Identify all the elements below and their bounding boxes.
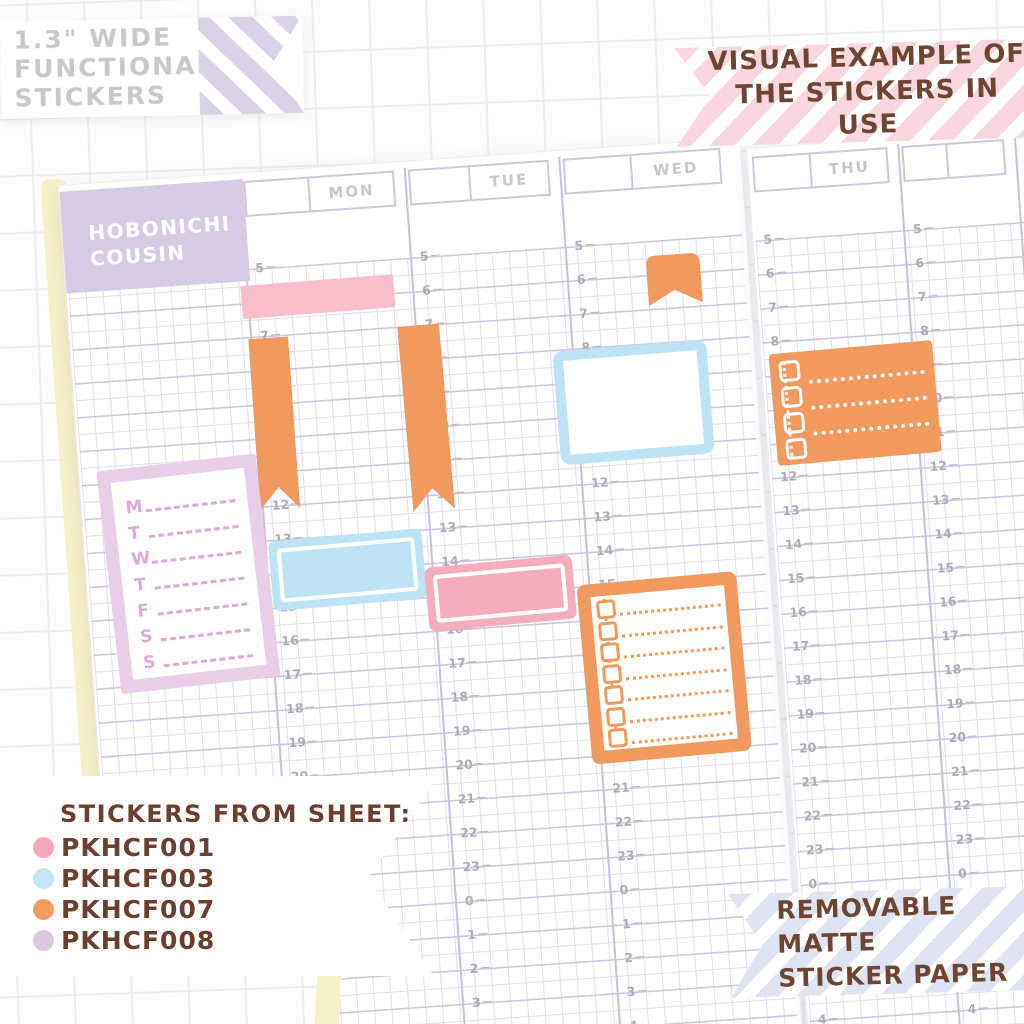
product-image: HOBONICHI COUSIN MTWTFSS MON567891011121… (0, 0, 1024, 1024)
checkbox (600, 642, 621, 663)
time-label: 19 (946, 694, 975, 711)
day-header-row: WED (562, 148, 722, 195)
sheet-code: PKHCF008 (61, 928, 215, 953)
day-name: MON (307, 173, 394, 211)
time-label: 22 (460, 824, 489, 841)
color-swatch (33, 899, 54, 920)
blue-outline-box-sticker (552, 339, 715, 465)
dotted-line (620, 604, 721, 616)
time-label: 23 (462, 857, 491, 874)
time-label: 18 (943, 661, 972, 678)
habit-tracker-sticker: MTWTFSS (96, 454, 280, 695)
dotted-line (628, 689, 729, 701)
time-label: 6 (422, 281, 443, 297)
top-right-banner: VISUAL EXAMPLE OF THE STICKERS IN USE (674, 39, 1024, 147)
day-name: WED (629, 150, 720, 188)
time-label: 6 (915, 254, 936, 270)
time-label: 12 (591, 474, 620, 491)
time-label: 22 (803, 807, 832, 824)
checkbox (778, 360, 801, 383)
day-header-row: MON (243, 171, 396, 217)
time-label: 7 (917, 288, 938, 304)
time-label: 6 (765, 265, 786, 281)
day-name: THU (809, 149, 888, 186)
sheet-list-item: PKHCF001 (33, 834, 215, 860)
time-label: 18 (286, 699, 315, 716)
color-swatch (33, 930, 54, 951)
purple-washi-tail (198, 16, 304, 115)
banner-line: THE STICKERS IN USE (705, 71, 1024, 147)
time-label: 17 (283, 665, 312, 682)
blue-label-box-sticker (268, 528, 428, 611)
habit-day-letter: S (142, 654, 160, 673)
time-label: 21 (801, 773, 830, 790)
checkbox (607, 728, 628, 749)
book-bottom-edge (315, 971, 342, 1024)
time-label: 22 (953, 796, 982, 813)
time-label: 5 (574, 237, 595, 253)
dotted-line (630, 711, 731, 723)
time-label: 19 (796, 705, 825, 722)
pink-label-box-sticker (424, 555, 577, 632)
dotted-line (813, 422, 929, 436)
habit-day-letter: F (137, 602, 155, 621)
time-label: 23 (806, 841, 835, 858)
sheet-list-item: PKHCF003 (33, 865, 215, 891)
checkbox (780, 386, 803, 409)
time-label: 5 (419, 248, 440, 264)
time-label: 2 (624, 949, 645, 965)
habit-day-letter: W (131, 550, 149, 569)
time-label: 20 (798, 739, 827, 756)
color-swatch (33, 868, 54, 889)
time-label: 15 (787, 569, 816, 586)
checkbox (783, 412, 806, 435)
time-label: 3 (626, 983, 647, 999)
sheet-code: PKHCF003 (61, 866, 215, 891)
wall-corner-patch (0, 974, 322, 1024)
time-label: 3 (472, 994, 493, 1010)
time-label: 0 (619, 881, 640, 897)
dotted-line (626, 668, 727, 680)
time-label: 13 (438, 518, 467, 535)
habit-day-letter: M (125, 499, 143, 518)
date-cell (903, 145, 947, 180)
time-label: 14 (784, 535, 813, 552)
time-label: 19 (453, 722, 482, 739)
habit-day-letter: T (134, 576, 152, 595)
time-label: 8 (920, 322, 941, 338)
checkbox (604, 685, 625, 706)
sheet-code: PKHCF001 (61, 835, 215, 860)
time-label: 22 (614, 813, 643, 830)
time-label: 13 (932, 491, 961, 508)
checkbox (606, 706, 627, 727)
time-label: 12 (929, 457, 958, 474)
checkbox (785, 437, 808, 460)
time-label: 17 (941, 627, 970, 644)
time-label: 19 (288, 733, 317, 750)
time-label: 1 (621, 915, 642, 931)
time-label: 4 (629, 1017, 650, 1024)
habit-day-letter: S (139, 628, 157, 647)
time-label: 5 (255, 259, 276, 275)
dotted-line (624, 646, 725, 658)
banner-line: STICKER PAPER (778, 955, 1024, 995)
time-label: 4 (817, 1011, 838, 1024)
sheet-code: PKHCF007 (61, 897, 215, 922)
time-label: 23 (617, 847, 646, 864)
time-label: 20 (455, 756, 484, 773)
checkbox (598, 621, 619, 642)
date-cell (245, 179, 309, 215)
bottom-right-banner: REMOVABLE MATTE STICKER PAPER (728, 886, 1024, 998)
date-cell (565, 156, 632, 192)
dotted-line (809, 370, 925, 384)
date-cell (410, 167, 470, 203)
orange-solid-checklist-sticker (768, 340, 941, 466)
time-label: 7 (579, 305, 600, 321)
habit-dashed-line (164, 654, 254, 667)
time-label: 5 (763, 231, 784, 247)
color-swatch (33, 837, 54, 858)
time-label: 16 (939, 593, 968, 610)
time-label: 21 (612, 779, 641, 796)
time-label: 15 (936, 559, 965, 576)
label-box-inner-outline (433, 563, 569, 623)
time-label: 13 (593, 507, 622, 524)
checkbox (596, 599, 617, 620)
time-label: 18 (794, 671, 823, 688)
day-header-row: THU (752, 147, 890, 192)
banner-text: 1.3" WIDE FUNCTIONAL STICKERS (13, 23, 215, 113)
habit-day-letter: T (128, 525, 146, 544)
time-label: 21 (457, 790, 486, 807)
time-label: 4 (967, 1000, 988, 1016)
sheet-list-item: PKHCF007 (33, 896, 215, 922)
dotted-line (622, 625, 723, 637)
sheet-list-item: PKHCF008 (33, 927, 215, 953)
legend-title: STICKERS FROM SHEET: (60, 800, 412, 828)
banner-line: STICKERS (14, 80, 215, 113)
label-box-inner-outline (276, 537, 418, 603)
banner-line: REMOVABLE MATTE (776, 888, 1024, 962)
time-label: 0 (808, 875, 829, 891)
time-label: 0 (464, 892, 485, 908)
time-label: 23 (955, 830, 984, 847)
time-label: 14 (934, 525, 963, 542)
time-label: 1 (467, 926, 488, 942)
time-label: 21 (950, 762, 979, 779)
banner-line: FUNCTIONAL (14, 51, 215, 84)
time-label: 20 (948, 728, 977, 745)
checkbox (602, 663, 623, 684)
time-label: 8 (770, 332, 791, 348)
time-label: 0 (958, 865, 979, 881)
dotted-line (632, 732, 733, 744)
day-header-row: TUE (408, 160, 551, 206)
dotted-line (811, 396, 927, 410)
hobonichi-cousin-label: HOBONICHI COUSIN (59, 179, 250, 294)
time-label: 16 (789, 603, 818, 620)
time-label: 17 (791, 637, 820, 654)
day-name: TUE (467, 162, 549, 199)
orange-checklist-sticker (576, 571, 752, 765)
time-label: 14 (595, 541, 624, 558)
day-header-row (901, 139, 1006, 182)
time-label: 12 (780, 467, 809, 484)
time-label: 6 (576, 271, 597, 287)
habit-tracker-rows: MTWTFSS (111, 468, 267, 680)
time-label: 18 (450, 688, 479, 705)
time-label: 2 (469, 960, 490, 976)
day-name (945, 141, 1005, 177)
date-cell (754, 155, 812, 191)
time-label: 7 (768, 298, 789, 314)
time-label: 5 (913, 220, 934, 236)
time-label: 16 (281, 632, 310, 649)
time-label: 13 (782, 501, 811, 518)
top-left-banner: 1.3" WIDE FUNCTIONAL STICKERS (0, 16, 304, 119)
time-label: 17 (448, 654, 477, 671)
